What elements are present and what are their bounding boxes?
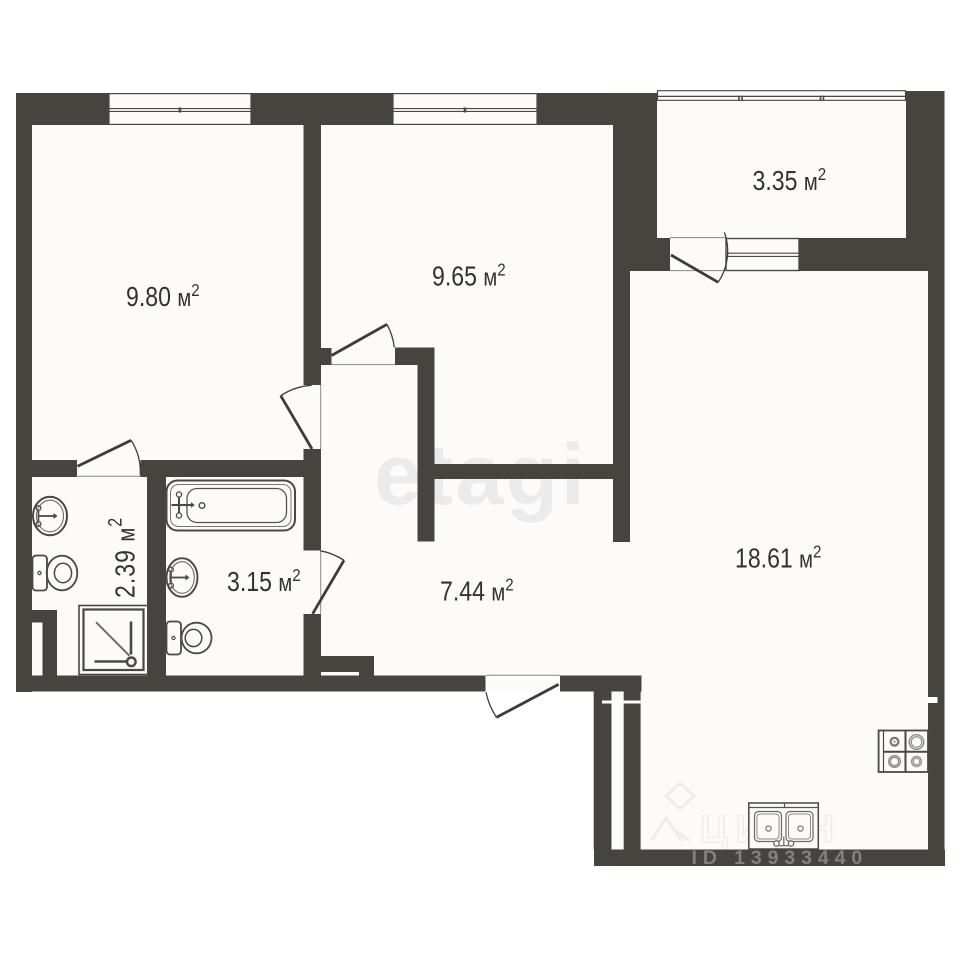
svg-text:3.15 м2: 3.15 м2 xyxy=(227,565,301,598)
svg-text:3.35 м2: 3.35 м2 xyxy=(753,164,827,197)
svg-text:9.65 м2: 9.65 м2 xyxy=(432,259,506,292)
svg-text:7.44 м2: 7.44 м2 xyxy=(440,574,514,607)
svg-text:18.61 м2: 18.61 м2 xyxy=(735,541,821,574)
svg-text:ID 13933440: ID 13933440 xyxy=(692,847,869,869)
svg-text:9.80 м2: 9.80 м2 xyxy=(126,280,200,313)
